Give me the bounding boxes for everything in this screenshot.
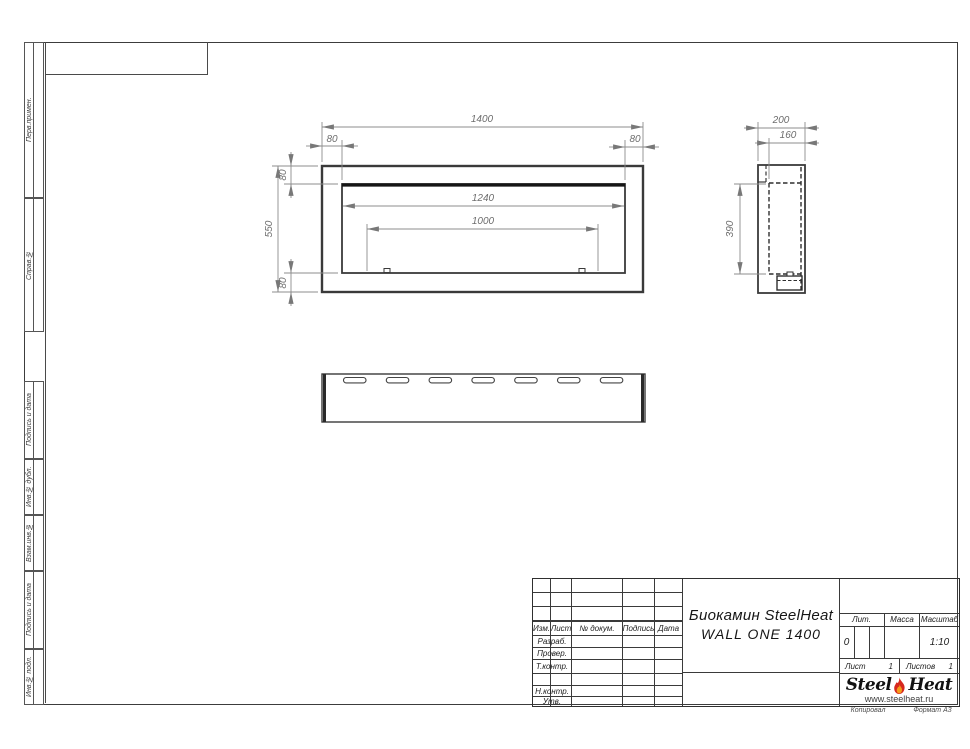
- dim-side-depth: 200: [772, 115, 790, 126]
- tb-massa-label: Масса: [884, 613, 919, 626]
- tb-line: [654, 579, 655, 706]
- tb-lit-sub: [869, 626, 884, 658]
- tb-lit-sub: [854, 626, 869, 658]
- dim-front-offset-top: 80: [278, 169, 289, 181]
- document-title-line1: Биокамин SteelHeat: [689, 607, 833, 626]
- dim-front-offset-left: 80: [326, 134, 338, 145]
- dim-front-offset-right: 80: [629, 134, 641, 145]
- side-dimension-labels: 200 160 390: [725, 115, 797, 237]
- tb-logo-cell: Steel Heat www.steelheat.ru: [839, 673, 959, 706]
- revision-cell: [533, 593, 682, 607]
- bottom-view: [322, 374, 645, 422]
- front-dimensions: [272, 122, 659, 306]
- tb-col-data: Дата: [655, 621, 682, 635]
- tb-row-razrab: Разраб.: [533, 635, 571, 647]
- side-dimensions: [734, 122, 819, 274]
- dim-front-opening-width: 1240: [472, 193, 495, 204]
- tb-list-label: Лист: [845, 662, 866, 671]
- tb-line: [571, 685, 682, 686]
- tb-masshtab-label: Масштаб: [919, 613, 959, 626]
- tb-row-prover: Провер.: [533, 647, 571, 659]
- front-burner-tab-left: [384, 269, 390, 273]
- tb-line: [571, 579, 572, 706]
- front-dimension-labels: 1400 80 80 550 80 80 1240 1000: [264, 114, 641, 289]
- tb-lit-value: 0: [839, 626, 854, 658]
- dim-side-inner-depth: 160: [780, 130, 797, 141]
- tb-col-doc: № докум.: [572, 621, 622, 635]
- logo-text-steel: Steel: [846, 677, 892, 694]
- copied-label: Копировал: [838, 707, 898, 714]
- side-burner-notch: [787, 272, 793, 276]
- tb-line: [571, 696, 682, 697]
- tb-line: [571, 647, 682, 648]
- front-burner-tab-right: [579, 269, 585, 273]
- drawing-sheet: Перв.примен. Справ.№ Подпись и дата Инв.…: [0, 0, 970, 749]
- tb-row-nkontr: Н.контр.: [533, 685, 571, 696]
- dim-front-height: 550: [264, 220, 275, 237]
- tb-document-name: Биокамин SteelHeat WALL ONE 1400: [682, 579, 839, 673]
- format-label: Формат А3: [905, 707, 960, 714]
- revision-cell: [533, 579, 682, 593]
- tb-row-empty: [533, 673, 571, 685]
- dim-front-offset-bottom: 80: [278, 277, 289, 289]
- flame-icon: [892, 677, 907, 695]
- logo-text-heat: Heat: [908, 677, 952, 694]
- title-block: Изм. Лист № докум. Подпись Дата Разраб. …: [532, 578, 960, 707]
- side-burner-box: [777, 276, 802, 290]
- tb-list-cell: Лист 1: [839, 659, 899, 673]
- tb-masshtab-value: 1:10: [919, 626, 959, 658]
- tb-line: [571, 659, 682, 660]
- dim-front-width: 1400: [471, 114, 494, 125]
- tb-listov-cell: Листов 1: [899, 659, 959, 673]
- tb-line: [571, 673, 682, 674]
- revision-cell: [533, 607, 682, 621]
- tb-row-tkontr: Т.контр.: [533, 659, 571, 673]
- tb-massa-value: [884, 626, 919, 658]
- steelheat-logo: Steel Heat www.steelheat.ru: [846, 677, 952, 704]
- dim-front-burner-width: 1000: [472, 216, 495, 227]
- tb-list-value: 1: [889, 662, 893, 671]
- tb-lit-label: Лит.: [839, 613, 884, 626]
- dim-side-opening-height: 390: [725, 220, 736, 237]
- tb-listov-label: Листов: [906, 662, 935, 671]
- document-title: Биокамин SteelHeat WALL ONE 1400: [689, 607, 833, 643]
- tb-row-utv: Утв.: [533, 696, 571, 706]
- tb-listov-value: 1: [949, 662, 953, 671]
- tb-col-izm: Изм.: [533, 621, 550, 635]
- logo-website: www.steelheat.ru: [865, 695, 934, 704]
- tb-line: [571, 635, 682, 636]
- tb-col-list: Лист: [551, 621, 571, 635]
- vent-slots: [344, 378, 623, 383]
- document-title-line2: WALL ONE 1400: [689, 626, 833, 644]
- tb-col-podpis: Подпись: [623, 621, 654, 635]
- tb-line: [622, 579, 623, 706]
